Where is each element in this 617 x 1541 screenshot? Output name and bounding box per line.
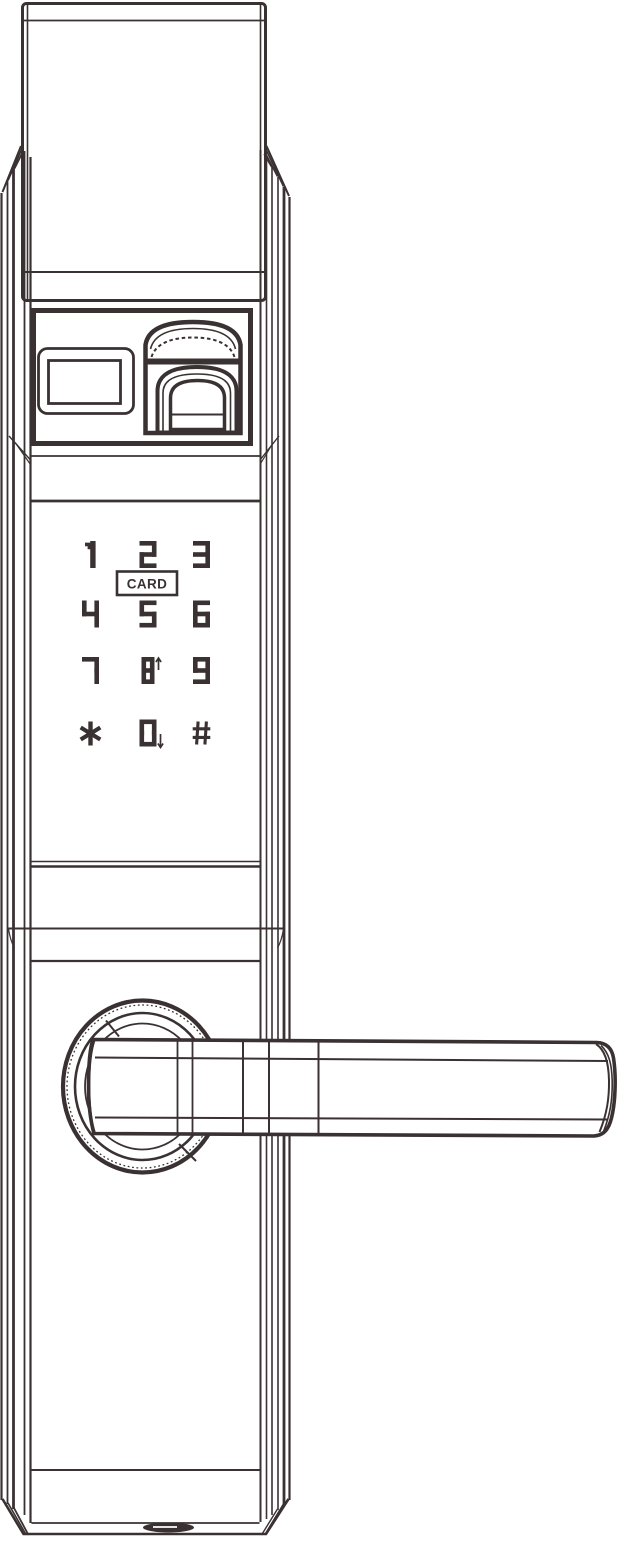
key-8 [142, 657, 162, 684]
up-arrow-icon [156, 658, 161, 670]
door-handle [89, 1040, 616, 1137]
key-4 [82, 601, 99, 628]
key-6 [193, 601, 210, 628]
key-5 [140, 601, 157, 628]
key-1 [85, 541, 96, 568]
card-reader-badge: CARD [117, 572, 177, 596]
bottom-port [143, 1523, 194, 1533]
key-9 [193, 657, 210, 684]
top-cover-plate [23, 4, 266, 301]
display-window [39, 349, 134, 414]
door-lock-drawing: CARD [0, 0, 617, 1541]
fingerprint-scanner [146, 322, 241, 433]
key-3 [193, 541, 210, 568]
face-divider-lines [8, 436, 284, 1523]
key-7 [82, 657, 99, 684]
key-star [81, 722, 101, 746]
card-label: CARD [127, 577, 168, 592]
key-0 [140, 720, 164, 748]
key-hash [193, 722, 211, 745]
key-2 [140, 541, 157, 568]
down-arrow-icon [158, 734, 163, 748]
